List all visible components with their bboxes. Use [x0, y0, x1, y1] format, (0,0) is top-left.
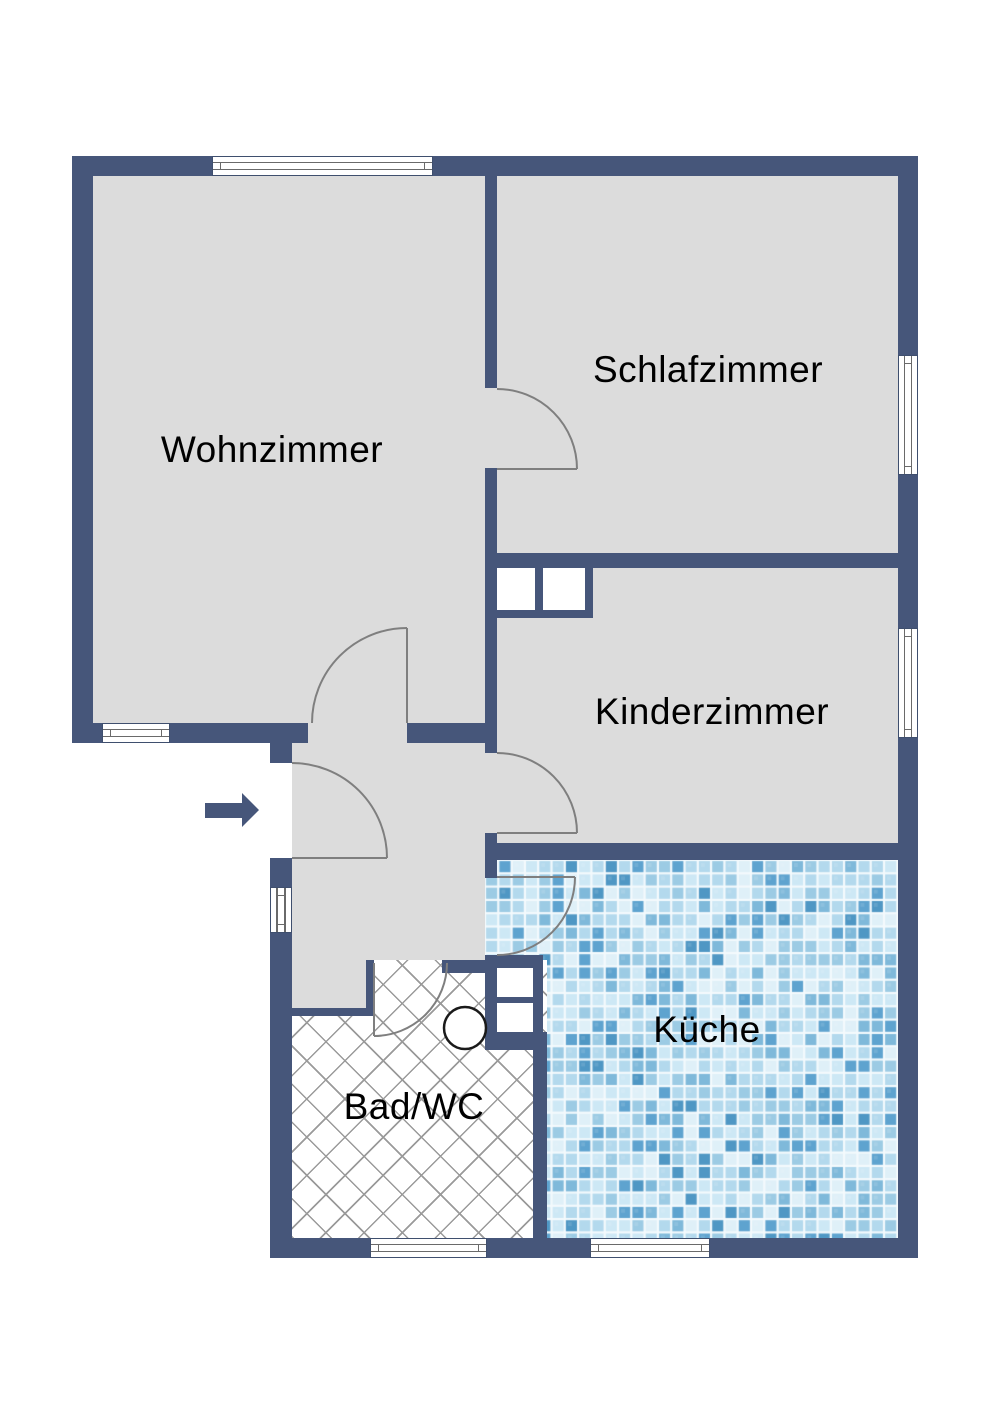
- window-bathroom-bottom: [370, 1238, 487, 1258]
- wall-top-right: [433, 156, 918, 176]
- window-bedroom-right: [898, 355, 918, 475]
- room-label-bad-wc: Bad/WC: [344, 1086, 485, 1128]
- hallway-floor: [292, 743, 485, 960]
- shaft-opening-1: [497, 568, 535, 610]
- room-label-kinderzimmer: Kinderzimmer: [595, 691, 829, 733]
- wall-top-left: [72, 156, 212, 176]
- window-hallway-left: [270, 887, 292, 933]
- wall-bottom-1: [270, 1238, 370, 1258]
- shaft-opening-2: [543, 568, 585, 610]
- floor-plan: Wohnzimmer Schlafzimmer Kinderzimmer Küc…: [0, 0, 1000, 1415]
- wall-left-upper: [72, 176, 93, 723]
- wall-bath-east: [533, 1032, 547, 1238]
- wall-right-2: [898, 475, 918, 628]
- shaft-opening-4: [497, 1003, 533, 1032]
- window-childrens-room-right: [898, 628, 918, 738]
- wall-living-south-1: [72, 723, 102, 743]
- doorway-childrens-room: [485, 753, 497, 833]
- wall-left-lower-2: [270, 858, 292, 887]
- wall-bottom-2: [487, 1238, 590, 1258]
- doorway-bedroom: [485, 388, 497, 468]
- window-living-room-bottom: [102, 723, 170, 743]
- window-living-room-top: [212, 156, 433, 176]
- wall-bottom-3: [710, 1238, 918, 1258]
- hallway-niche-floor: [292, 960, 366, 1008]
- wall-living-south-3: [407, 723, 487, 743]
- wall-right-3: [898, 738, 918, 1258]
- wall-divider-upper: [485, 176, 497, 388]
- room-label-schlafzimmer: Schlafzimmer: [593, 349, 823, 391]
- shaft-opening-3: [497, 968, 533, 997]
- room-label-kueche: Küche: [653, 1009, 760, 1051]
- room-label-wohnzimmer: Wohnzimmer: [161, 429, 383, 471]
- wall-living-south-2: [170, 723, 308, 743]
- wall-left-lower-1: [270, 742, 292, 763]
- wall-niche-south: [292, 1008, 366, 1016]
- wall-bath-stub: [366, 960, 374, 1016]
- doorway-living-hall: [308, 723, 407, 743]
- wall-right-1: [898, 176, 918, 355]
- window-kitchen-bottom: [590, 1238, 710, 1258]
- wall-kitchen-north: [485, 843, 898, 860]
- entry-arrow-icon: [205, 793, 259, 827]
- wall-left-lower-3: [270, 933, 292, 1258]
